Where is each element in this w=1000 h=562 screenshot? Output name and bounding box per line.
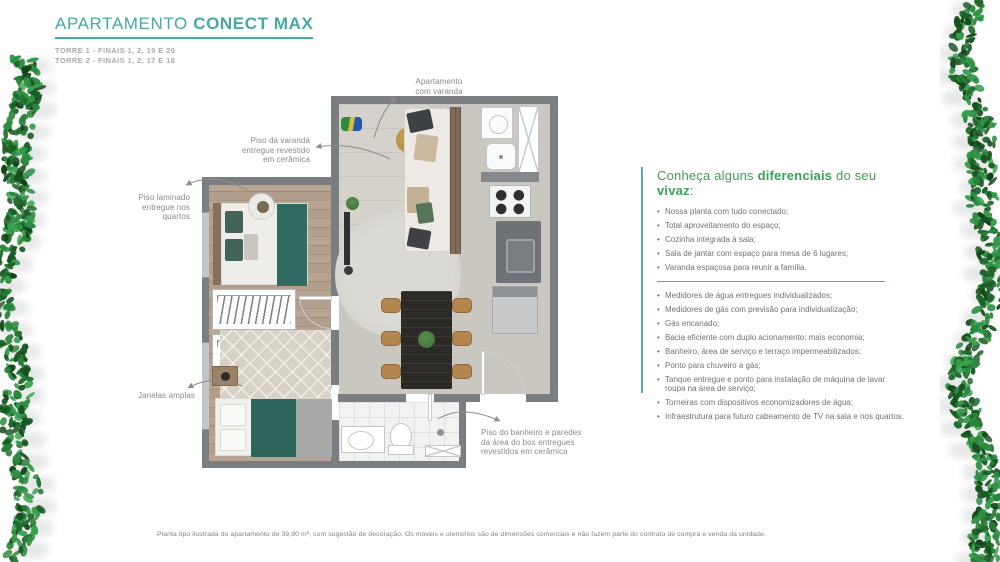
panel-accent-line <box>641 167 643 393</box>
feature-item: Medidores de gás com previsão para indiv… <box>657 305 907 315</box>
sofa <box>404 108 450 252</box>
feature-item: Infraestrutura para futuro cabeamento de… <box>657 412 907 422</box>
table-centerpiece-plant <box>418 331 435 348</box>
dining-chair-1 <box>381 298 401 313</box>
foliage-right-image <box>940 0 1000 562</box>
feature-item: Torneiras com dispositivos economizadore… <box>657 398 907 408</box>
wall-bottom <box>202 461 466 468</box>
feature-item: Banheiro, área de serviço e terraço impe… <box>657 347 907 357</box>
hat-chair <box>248 193 275 220</box>
feature-item: Bacia eficiente com duplo acionamento: m… <box>657 333 907 343</box>
dining-chair-6 <box>452 364 472 379</box>
feature-item: Varanda espaçosa para reunir a família. <box>657 263 907 273</box>
annotation-janelas-amplas: Janelas amplas <box>133 391 195 401</box>
sofa-cushion-green <box>416 202 435 224</box>
feature-item: Tanque entregue e ponto para instalação … <box>657 375 907 394</box>
varanda-plant-decor <box>341 117 362 131</box>
wall-top <box>331 96 558 104</box>
speaker <box>344 266 353 275</box>
laundry-tank <box>486 143 516 170</box>
living-plant <box>346 197 359 210</box>
feature-item: Total aproveitamento do espaço; <box>657 221 907 231</box>
annotation-piso-laminado: Piso laminado entregue nos quartos <box>126 193 190 222</box>
disclaimer-text: Planta tipo ilustrada do apartamento de … <box>157 531 766 538</box>
annotation-apartamento-varanda: Apartamento com varanda <box>398 77 480 96</box>
header: APARTAMENTO CONECT MAX TORRE 1 - FINAIS … <box>55 14 313 66</box>
page-title: APARTAMENTO CONECT MAX <box>55 14 313 39</box>
washing-machine <box>481 107 513 139</box>
sofa-cushion-beige-1 <box>413 134 438 163</box>
features-divider <box>657 281 885 282</box>
feature-item: Gás encanado; <box>657 319 907 329</box>
feature-item: Cozinha integrada à sala; <box>657 235 907 245</box>
features-panel: Conheça alguns diferenciais do seu vivaz… <box>657 168 907 426</box>
wall-living-bottom-3 <box>526 394 558 402</box>
feature-item: Medidores de água entregues individualiz… <box>657 291 907 301</box>
wall-bedroom-top <box>202 177 339 185</box>
wall-interior-2 <box>331 330 339 385</box>
foliage-left-image <box>0 40 58 562</box>
bed-2 <box>215 398 331 456</box>
dining-chair-5 <box>452 331 472 346</box>
fridge <box>492 286 538 334</box>
annotation-piso-banheiro: Piso do banheiro e paredes da área do bo… <box>481 428 601 457</box>
wall-interior-3 <box>331 420 339 461</box>
dining-chair-2 <box>381 331 401 346</box>
features-list-1: Nossa planta com tudo conectado; Total a… <box>657 207 907 273</box>
dining-chair-3 <box>381 364 401 379</box>
sofa-cushion-dark <box>406 109 434 134</box>
feature-item: Sala de jantar com espaço para mesa de 6… <box>657 249 907 259</box>
tower-subtitle: TORRE 1 - FINAIS 1, 2, 19 E 20 TORRE 2 -… <box>55 46 313 66</box>
bed-1-headboard <box>213 203 221 285</box>
annotation-piso-varanda: Piso da varanda entregue revestido em ce… <box>228 136 310 165</box>
shower-box <box>425 445 461 457</box>
wall-upper-left <box>331 96 339 185</box>
dining-chair-4 <box>452 298 472 313</box>
wall-living-bottom-2 <box>434 394 480 402</box>
wall-right <box>550 96 558 402</box>
service-window <box>518 106 539 173</box>
service-shelf <box>481 172 539 182</box>
tower-2-line: TORRE 2 - FINAIS 1, 2, 17 E 18 <box>55 56 313 66</box>
kitchen-counter <box>496 221 541 283</box>
kitchen-sink <box>506 239 535 273</box>
tv-panel <box>344 212 350 265</box>
sofa-cushion-dark-2 <box>407 227 432 250</box>
window-bedroom-2 <box>202 342 209 430</box>
shower-head <box>437 429 444 436</box>
nightstand <box>212 366 238 386</box>
tower-1-line: TORRE 1 - FINAIS 1, 2, 19 E 20 <box>55 46 313 56</box>
wardrobe-1 <box>212 289 296 330</box>
features-heading: Conheça alguns diferenciais do seu vivaz… <box>657 168 907 198</box>
console-panel <box>450 107 461 254</box>
features-list-2: Medidores de água entregues individualiz… <box>657 291 907 422</box>
wall-living-bottom-1 <box>338 394 406 402</box>
window-bedroom-1 <box>202 212 209 278</box>
gas-stove <box>489 185 531 218</box>
bathroom-door <box>428 394 432 421</box>
feature-item: Ponto para chuveiro a gás; <box>657 361 907 371</box>
feature-item: Nossa planta com tudo conectado; <box>657 207 907 217</box>
bathroom-vanity <box>341 426 385 453</box>
toilet-tank <box>388 445 414 455</box>
